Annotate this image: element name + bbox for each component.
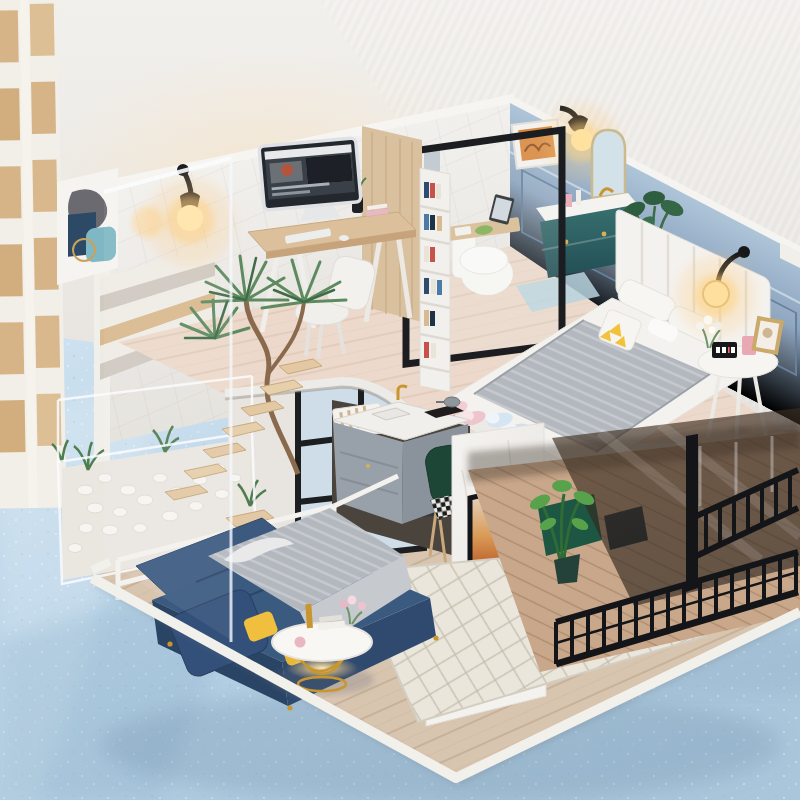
- acrylic-panel: [104, 158, 231, 642]
- dollhouse-photo: [0, 0, 800, 800]
- lotion-bottle: [576, 190, 581, 205]
- sconce-bulb: [571, 129, 593, 151]
- pot: [444, 397, 460, 407]
- dollhouse-scene: [0, 0, 800, 800]
- mouse: [339, 235, 349, 241]
- sconce-glass-globe: [703, 281, 729, 307]
- pink-cup: [295, 637, 306, 648]
- perfume-bottle: [566, 194, 572, 207]
- vanity-knob: [602, 232, 607, 237]
- bookshelf: [420, 168, 450, 392]
- acrylic-sheen: [104, 158, 231, 640]
- pallet-rack: [0, 0, 66, 509]
